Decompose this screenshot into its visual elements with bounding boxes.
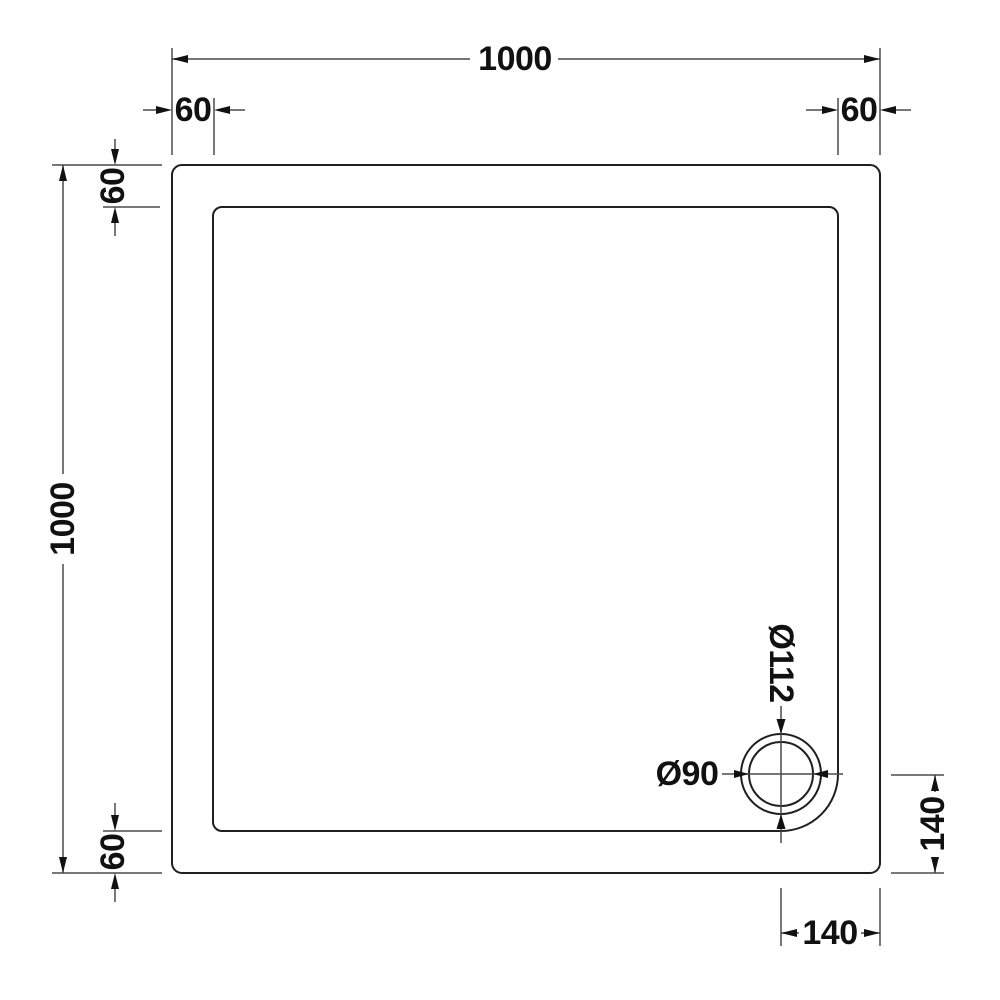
arrow-right-icon: [864, 55, 880, 63]
flange-top-right-label: 60: [841, 91, 878, 129]
drain-inner-diameter-label: Ø90: [656, 755, 719, 793]
dim-flange-top-left: 60: [143, 91, 245, 155]
arrow-down-icon: [111, 815, 119, 831]
waste-offset-bottom-label: 140: [802, 914, 857, 952]
arrow-left-icon: [172, 55, 188, 63]
arrow-down-icon: [777, 719, 786, 734]
flange-left-top-label: 60: [94, 168, 132, 205]
arrow-left-icon: [880, 106, 896, 114]
tray-outline: [172, 165, 880, 873]
dim-overall-depth: 1000: [44, 165, 162, 873]
arrow-left-icon: [214, 106, 230, 114]
dim-flange-left-top: 60: [94, 139, 160, 236]
arrow-right-icon: [864, 929, 880, 937]
tray-outer-edge: [172, 165, 880, 873]
overall-width-label: 1000: [478, 40, 552, 78]
flange-top-left-label: 60: [175, 91, 212, 129]
arrow-up-icon: [111, 207, 119, 223]
overall-depth-label: 1000: [44, 482, 82, 556]
dim-waste-offset-bottom: 140: [781, 888, 880, 952]
arrow-left-icon: [781, 929, 797, 937]
arrow-up-icon: [111, 873, 119, 889]
dim-waste-offset-right: 140: [891, 775, 952, 873]
dim-flange-left-bottom: 60: [94, 803, 162, 902]
waste-drain: Ø112 Ø90: [656, 623, 843, 843]
arrow-up-icon: [59, 165, 67, 181]
waste-offset-right-label: 140: [914, 796, 952, 851]
tray-inner-edge: [213, 207, 838, 831]
arrow-up-icon: [931, 775, 939, 791]
flange-left-bottom-label: 60: [94, 834, 132, 871]
arrow-down-icon: [931, 857, 939, 873]
dim-overall-width: 1000: [172, 40, 880, 155]
dim-flange-top-right: 60: [806, 91, 911, 155]
arrow-up-icon: [777, 814, 786, 829]
drawing-canvas: Ø112 Ø90 1000 60 60 1000: [0, 0, 1000, 1000]
arrow-right-icon: [156, 106, 172, 114]
drain-outer-diameter-label: Ø112: [762, 623, 800, 702]
arrow-down-icon: [59, 857, 67, 873]
shower-tray-technical-drawing: Ø112 Ø90 1000 60 60 1000: [0, 0, 1000, 1000]
arrow-down-icon: [111, 149, 119, 165]
arrow-right-icon: [822, 106, 838, 114]
